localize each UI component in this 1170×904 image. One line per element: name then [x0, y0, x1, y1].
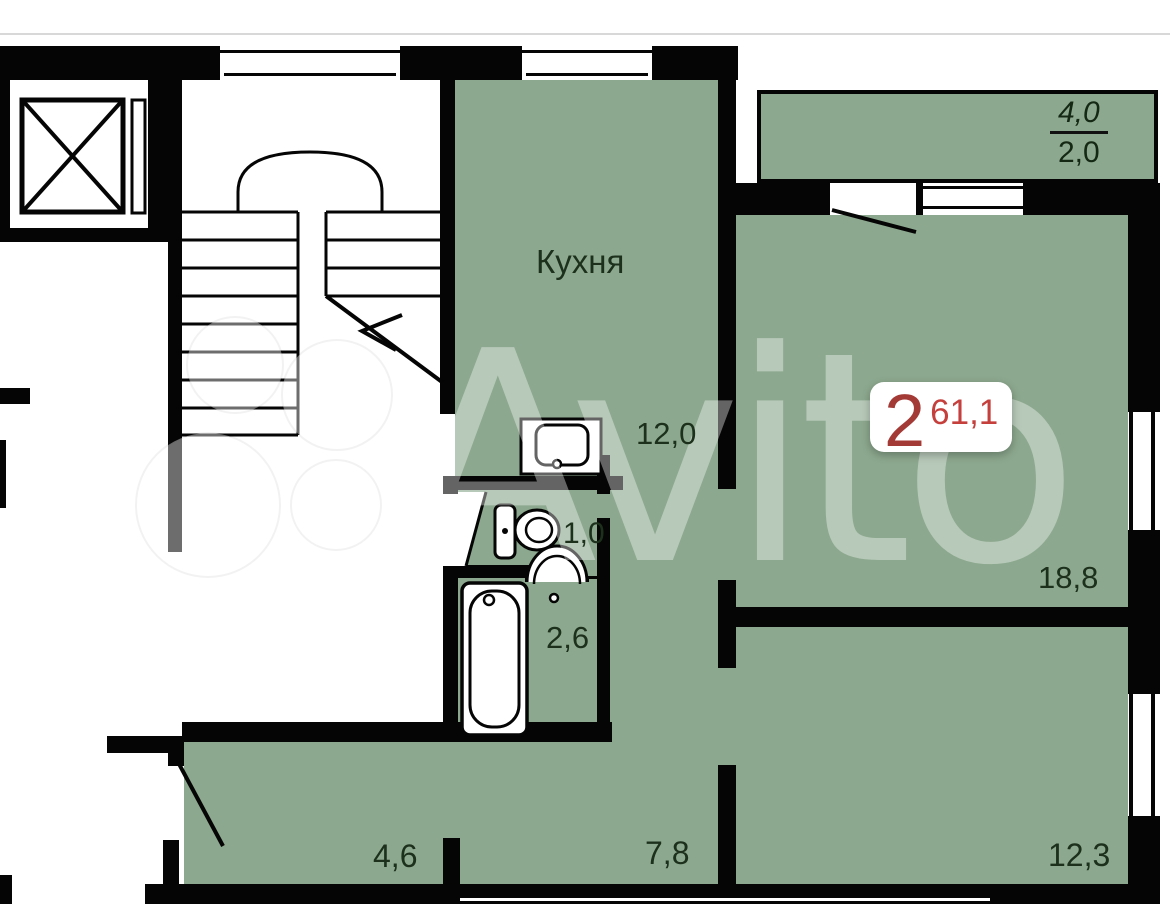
kitchen-area-label: 12,0	[636, 416, 696, 452]
bathroom-area-label: 2,6	[546, 620, 589, 656]
corridor-area-label: 7,8	[645, 835, 689, 872]
total-area: 61,1	[930, 395, 998, 430]
watermark-circle	[291, 460, 381, 550]
stair-direction-arrow	[362, 315, 402, 350]
watermark-circle	[282, 340, 392, 450]
wc-area-label: 1,0	[563, 517, 605, 551]
balcony-window	[923, 186, 1023, 189]
avito-watermark: Avito	[136, 289, 1068, 629]
floor-plan: Avito Кухня 12,0 1,0 2,6 18,8 12,3 4,6 7…	[0, 0, 1170, 904]
hallway-area-label: 4,6	[373, 838, 417, 875]
balcony-area-coefficient: 2,0	[1050, 134, 1108, 170]
balcony-area-total: 4,0	[1050, 96, 1108, 134]
floor-plan-drawing: Avito	[0, 0, 1170, 904]
top-divider-line	[0, 33, 1170, 35]
listing-area-badge: 2 61,1	[870, 382, 1012, 452]
watermark-circle	[187, 317, 283, 413]
living-room-area-label: 18,8	[1038, 560, 1098, 596]
elevator-shaft-icon	[22, 100, 145, 213]
living-room-window	[1129, 412, 1133, 530]
balcony-area-fraction: 4,0 2,0	[1050, 96, 1108, 170]
bedroom-window	[1129, 694, 1133, 816]
watermark-circle	[136, 433, 280, 577]
bedroom-area-label: 12,3	[1048, 837, 1110, 874]
kitchen-label: Кухня	[536, 243, 624, 281]
balcony-door-opening	[830, 183, 916, 215]
rooms-count: 2	[884, 388, 925, 454]
watermark-text: Avito	[398, 289, 1068, 629]
